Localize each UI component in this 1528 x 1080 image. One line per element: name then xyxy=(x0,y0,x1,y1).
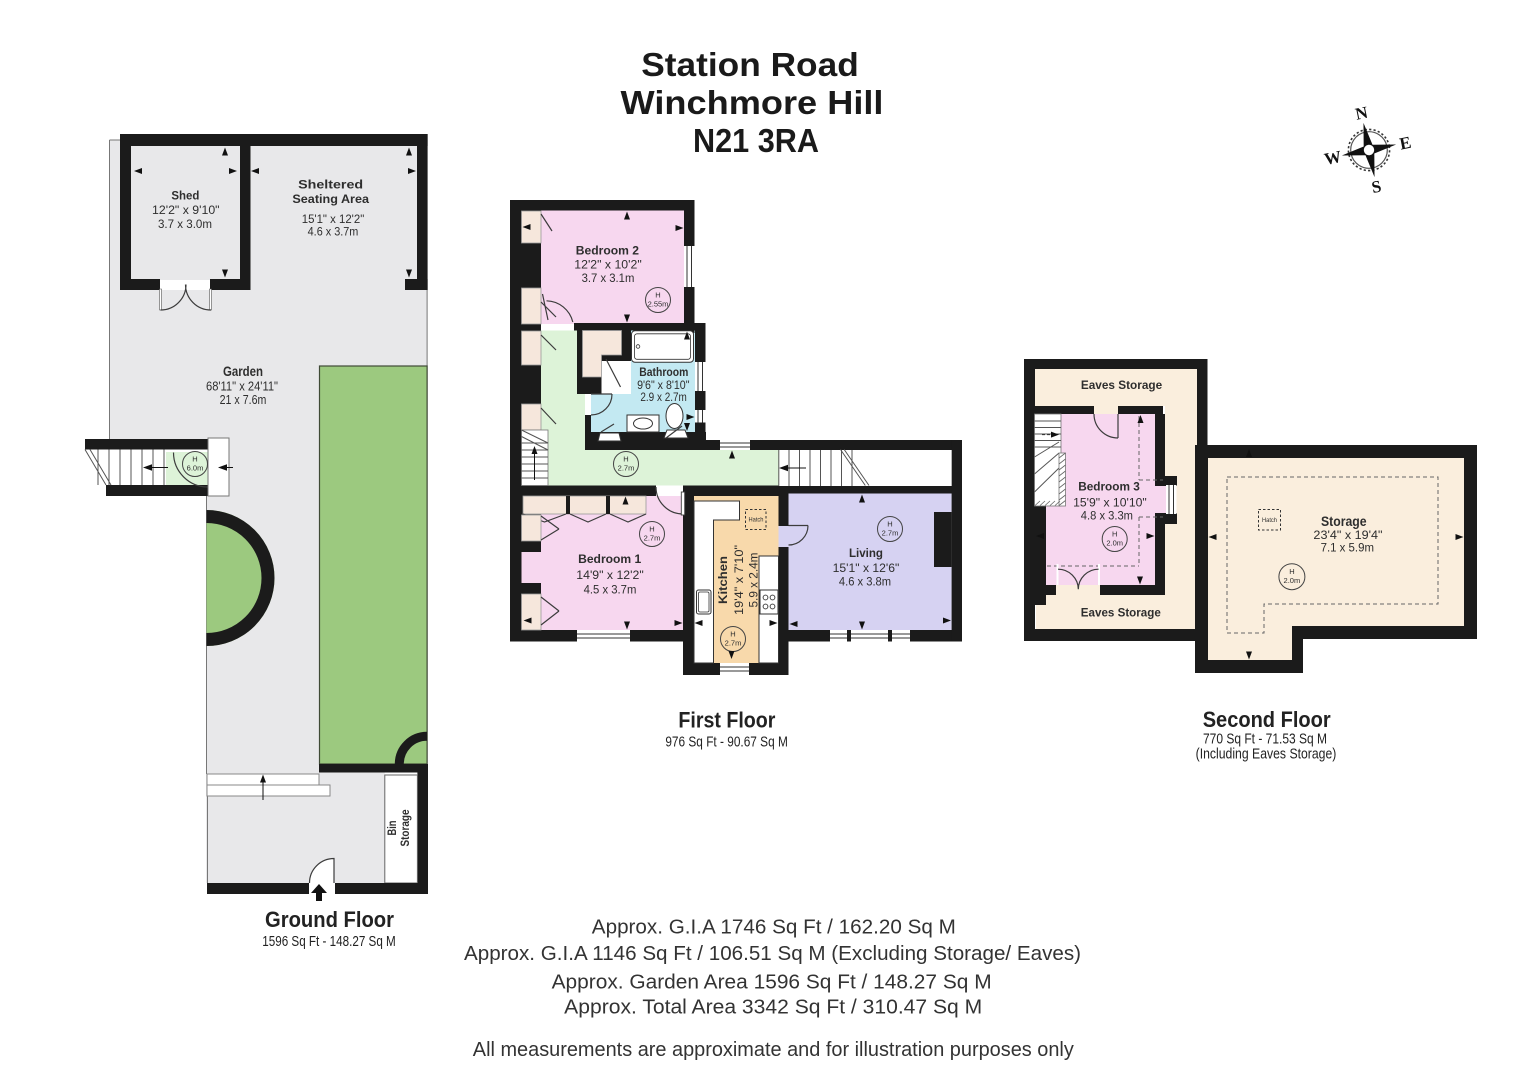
svg-text:H: H xyxy=(623,455,628,464)
svg-text:12'2" x 9'10": 12'2" x 9'10" xyxy=(152,205,220,217)
svg-text:14'9" x 12'2": 14'9" x 12'2" xyxy=(576,570,643,582)
svg-text:4.6 x 3.8m: 4.6 x 3.8m xyxy=(839,576,891,588)
svg-text:All measurements are approxima: All measurements are approximate and for… xyxy=(473,1039,1074,1061)
svg-text:Eaves Storage: Eaves Storage xyxy=(1081,606,1161,620)
svg-text:1596 Sq Ft - 148.27 Sq M: 1596 Sq Ft - 148.27 Sq M xyxy=(262,934,396,950)
svg-text:15'9" x 10'10": 15'9" x 10'10" xyxy=(1073,498,1147,510)
svg-text:3.7 x 3.1m: 3.7 x 3.1m xyxy=(582,273,635,285)
svg-text:Approx. G.I.A 1146 Sq Ft / 106: Approx. G.I.A 1146 Sq Ft / 106.51 Sq M (… xyxy=(464,943,1081,965)
svg-text:12'2" x 10'2": 12'2" x 10'2" xyxy=(574,260,641,272)
svg-text:5.9 x 2.4m: 5.9 x 2.4m xyxy=(749,553,761,608)
svg-text:15'1" x 12'6": 15'1" x 12'6" xyxy=(833,563,900,575)
svg-text:Storage: Storage xyxy=(1321,514,1367,529)
svg-text:N21 3RA: N21 3RA xyxy=(693,122,819,159)
svg-text:Hatch: Hatch xyxy=(749,518,764,524)
svg-text:Storage: Storage xyxy=(398,809,412,846)
svg-text:W: W xyxy=(1323,147,1343,169)
svg-text:Second Floor: Second Floor xyxy=(1203,707,1331,732)
svg-text:2.7m: 2.7m xyxy=(725,639,742,648)
svg-text:Bin: Bin xyxy=(385,821,399,836)
svg-text:H: H xyxy=(887,520,892,529)
svg-text:770 Sq Ft - 71.53 Sq M: 770 Sq Ft - 71.53 Sq M xyxy=(1203,732,1327,748)
svg-text:4.8 x 3.3m: 4.8 x 3.3m xyxy=(1081,510,1133,522)
svg-text:Approx. G.I.A 1746 Sq Ft / 162: Approx. G.I.A 1746 Sq Ft / 162.20 Sq M xyxy=(592,917,956,939)
svg-text:2.7m: 2.7m xyxy=(882,529,899,538)
svg-text:N: N xyxy=(1354,103,1371,124)
svg-text:Bedroom 3: Bedroom 3 xyxy=(1078,479,1140,493)
svg-text:Shed: Shed xyxy=(171,188,199,202)
svg-text:6.0m: 6.0m xyxy=(187,464,204,473)
svg-text:Ground Floor: Ground Floor xyxy=(265,907,394,932)
svg-text:68'11" x 24'11": 68'11" x 24'11" xyxy=(206,380,278,394)
svg-text:15'1" x 12'2": 15'1" x 12'2" xyxy=(302,214,365,226)
svg-text:H: H xyxy=(1289,567,1294,576)
svg-text:23'4" x 19'4": 23'4" x 19'4" xyxy=(1313,530,1382,542)
svg-text:7.1 x 5.9m: 7.1 x 5.9m xyxy=(1321,542,1374,554)
svg-text:Approx. Garden Area 1596 Sq Ft: Approx. Garden Area 1596 Sq Ft / 148.27 … xyxy=(552,971,992,993)
svg-text:2.0m: 2.0m xyxy=(1106,539,1123,548)
svg-text:2.0m: 2.0m xyxy=(1284,576,1301,585)
svg-text:4.6 x 3.7m: 4.6 x 3.7m xyxy=(308,227,359,239)
svg-text:2.7m: 2.7m xyxy=(644,534,661,543)
svg-text:19'4" x 7'10": 19'4" x 7'10" xyxy=(734,545,746,615)
svg-text:9'6" x 8'10": 9'6" x 8'10" xyxy=(637,380,689,392)
svg-text:H: H xyxy=(192,455,197,464)
svg-text:Living: Living xyxy=(849,546,883,560)
svg-text:Sheltered: Sheltered xyxy=(298,178,363,192)
svg-text:976 Sq Ft - 90.67 Sq M: 976 Sq Ft - 90.67 Sq M xyxy=(665,735,788,751)
svg-text:Winchmore Hill: Winchmore Hill xyxy=(621,84,884,121)
svg-text:H: H xyxy=(655,291,660,300)
svg-text:2.7m: 2.7m xyxy=(618,464,635,473)
svg-text:E: E xyxy=(1398,133,1413,154)
svg-text:H: H xyxy=(730,630,735,639)
svg-text:2.55m: 2.55m xyxy=(648,300,669,309)
svg-text:2.9 x 2.7m: 2.9 x 2.7m xyxy=(640,392,687,404)
svg-text:Garden: Garden xyxy=(223,363,263,379)
svg-text:Bathroom: Bathroom xyxy=(639,365,688,379)
svg-text:21 x 7.6m: 21 x 7.6m xyxy=(220,393,267,407)
svg-text:(Including Eaves Storage): (Including Eaves Storage) xyxy=(1196,747,1337,763)
svg-text:Station Road: Station Road xyxy=(641,46,859,83)
svg-text:Bedroom 2: Bedroom 2 xyxy=(576,244,640,258)
svg-text:H: H xyxy=(1112,530,1117,539)
svg-text:Kitchen: Kitchen xyxy=(716,556,730,604)
svg-text:4.5 x 3.7m: 4.5 x 3.7m xyxy=(584,585,637,597)
svg-text:Bedroom 1: Bedroom 1 xyxy=(578,552,642,566)
svg-text:Seating Area: Seating Area xyxy=(292,192,369,206)
svg-text:First Floor: First Floor xyxy=(678,708,775,733)
svg-text:S: S xyxy=(1370,176,1383,197)
svg-text:Eaves Storage: Eaves Storage xyxy=(1081,378,1163,392)
svg-text:3.7 x 3.0m: 3.7 x 3.0m xyxy=(158,219,212,231)
svg-text:Hatch: Hatch xyxy=(1262,518,1277,524)
svg-text:H: H xyxy=(649,525,654,534)
svg-text:Approx. Total Area 3342 Sq Ft: Approx. Total Area 3342 Sq Ft / 310.47 S… xyxy=(564,996,982,1018)
